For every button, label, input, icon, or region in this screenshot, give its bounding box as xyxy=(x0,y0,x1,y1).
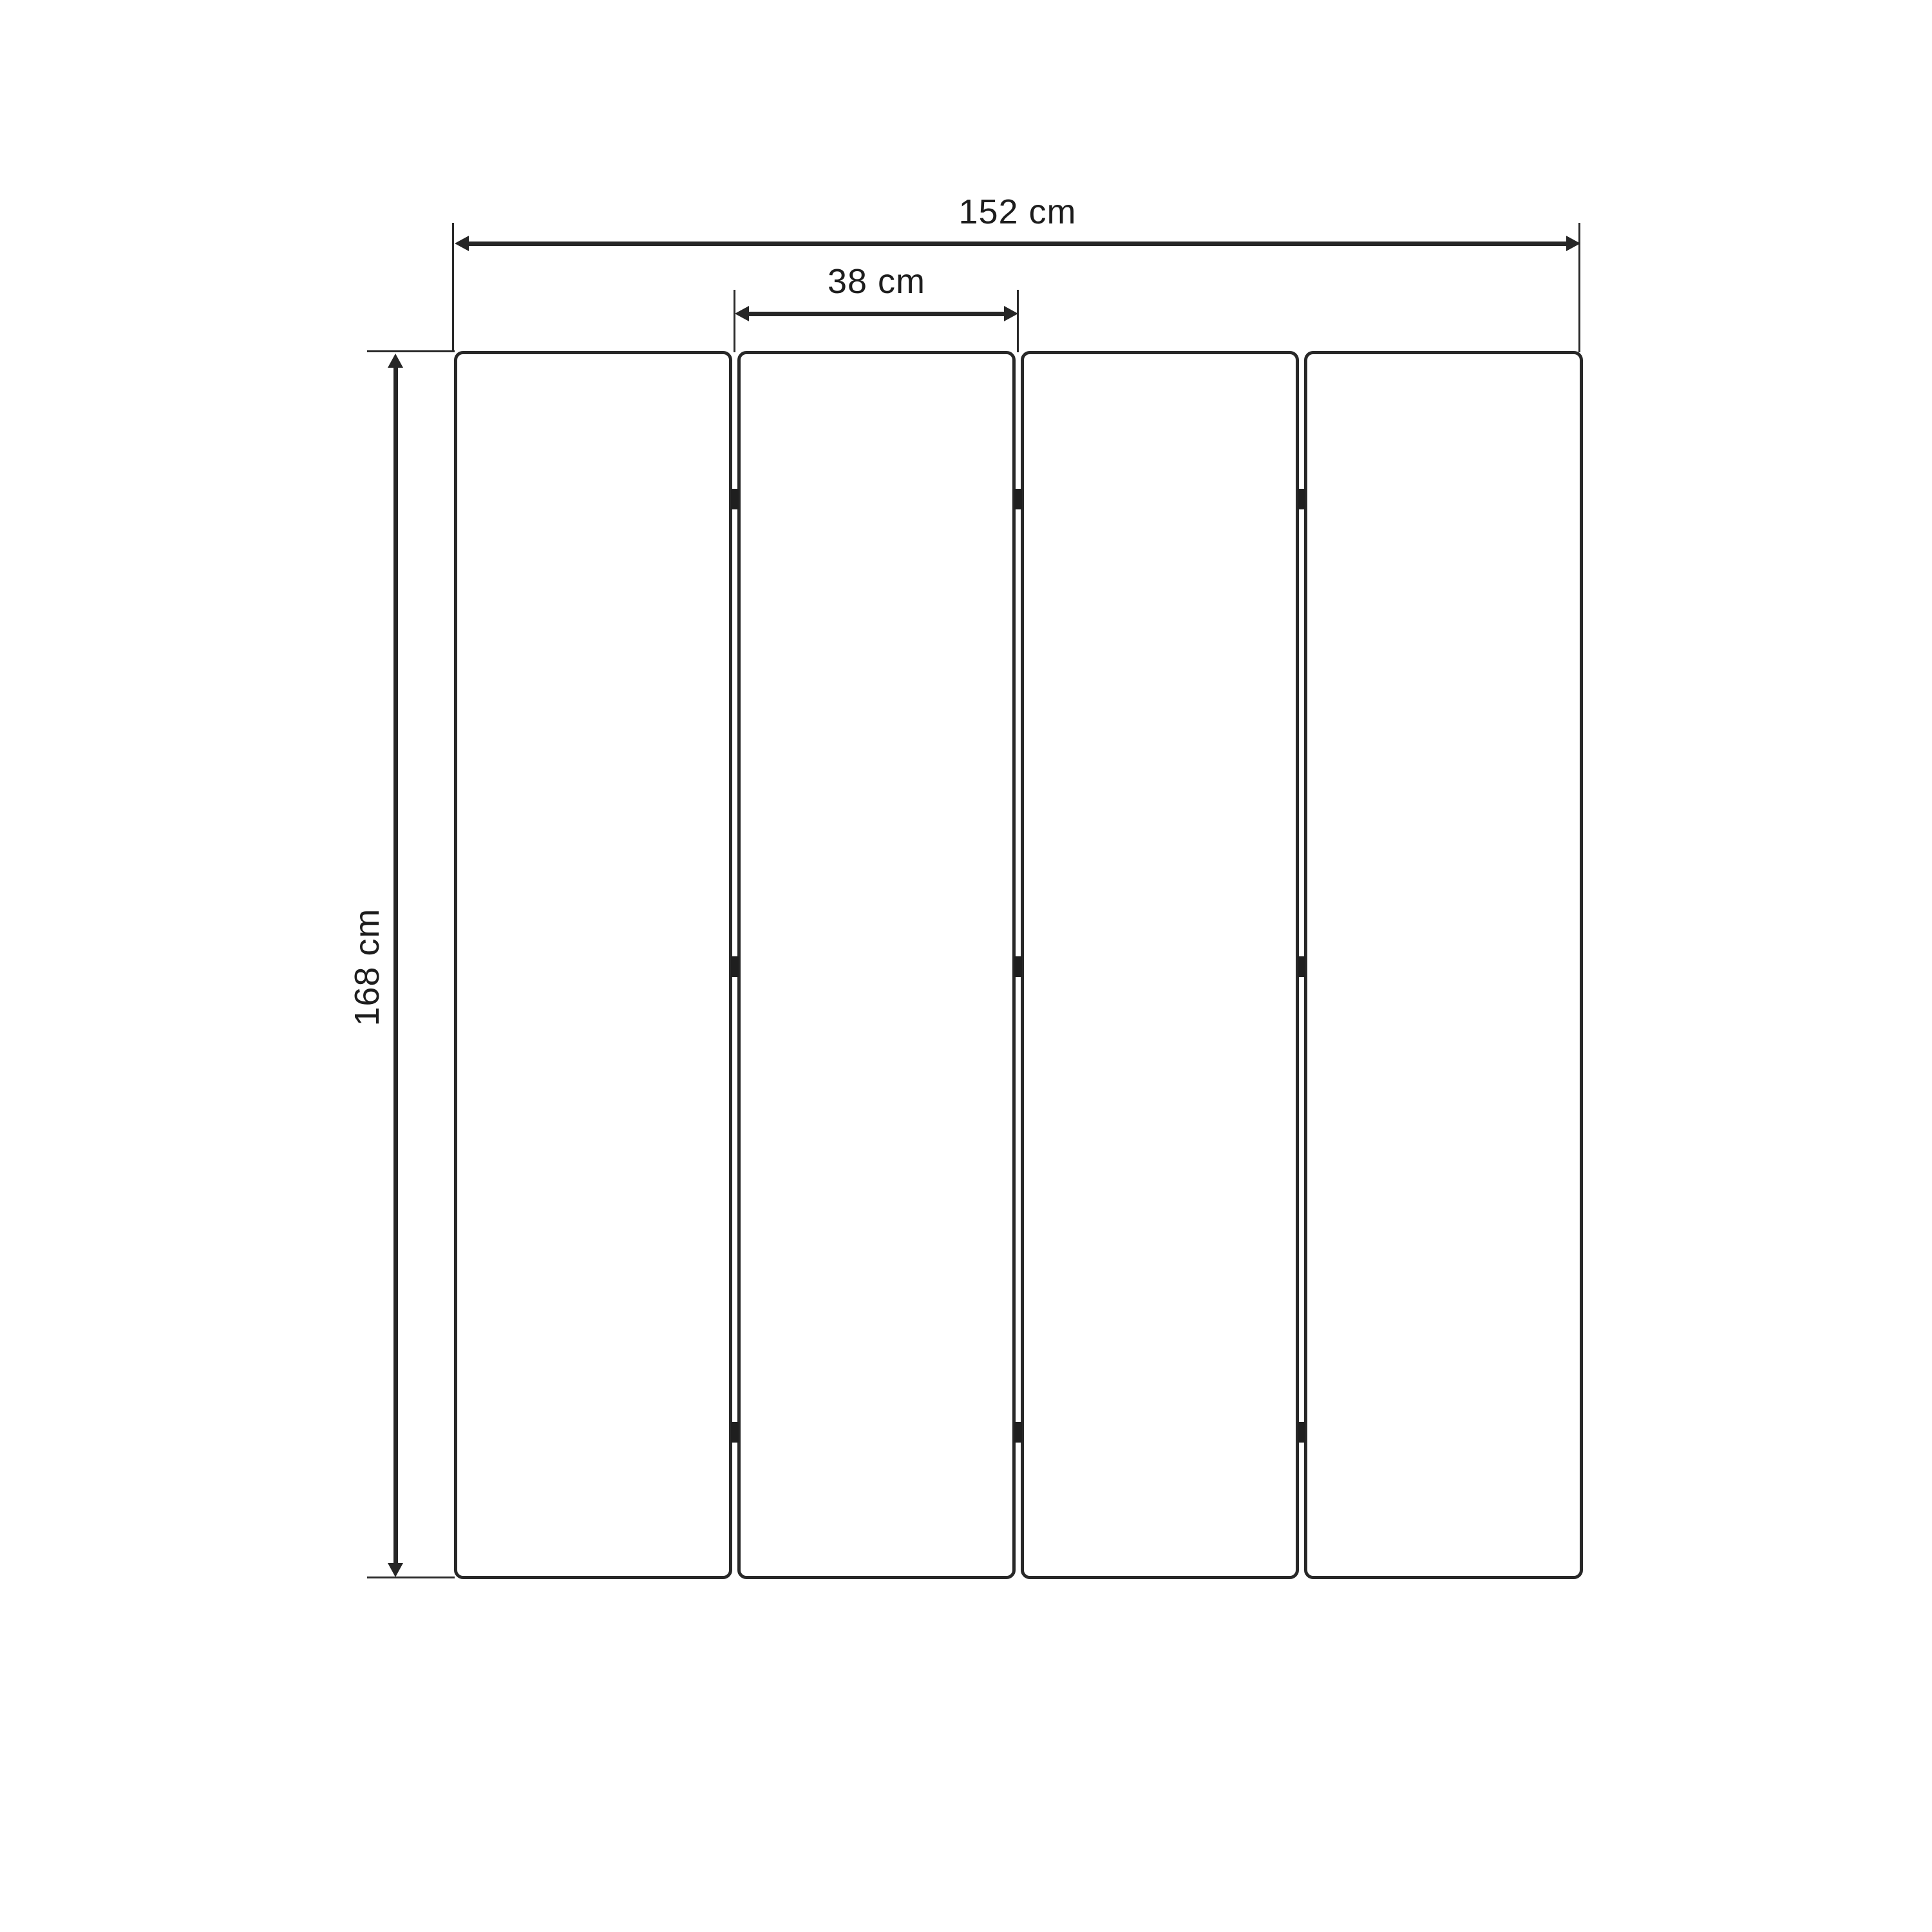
panel-1 xyxy=(454,351,732,1579)
arrowhead-up xyxy=(388,354,403,368)
arrowhead-down xyxy=(388,1563,403,1577)
hinge-mark xyxy=(731,956,739,977)
hinge-mark xyxy=(731,489,739,509)
arrow-shaft xyxy=(465,241,1570,246)
hinge-mark xyxy=(1298,1422,1305,1443)
extension-tick-top xyxy=(367,350,455,352)
arrowhead-left xyxy=(455,236,469,251)
hinge-mark xyxy=(1298,489,1305,509)
hinge-mark xyxy=(1014,1422,1022,1443)
panel-width-label: 38 cm xyxy=(828,264,925,299)
extension-tick-bottom xyxy=(367,1577,455,1578)
height-label: 168 cm xyxy=(350,908,384,1026)
panel-2 xyxy=(737,351,1016,1579)
extension-line xyxy=(452,223,454,352)
arrowhead-right xyxy=(1004,306,1018,321)
dimension-diagram: 152 cm 38 cm 168 cm xyxy=(0,0,1932,1932)
hinge-mark xyxy=(731,1422,739,1443)
hinge-mark xyxy=(1298,956,1305,977)
panel-3 xyxy=(1021,351,1299,1579)
arrowhead-left xyxy=(735,306,749,321)
arrow-shaft xyxy=(745,312,1007,316)
hinge-mark xyxy=(1014,956,1022,977)
hinge-mark xyxy=(1014,489,1022,509)
panel-4 xyxy=(1304,351,1583,1579)
arrow-shaft xyxy=(393,365,398,1566)
arrowhead-right xyxy=(1566,236,1580,251)
total-width-label: 152 cm xyxy=(958,194,1076,229)
